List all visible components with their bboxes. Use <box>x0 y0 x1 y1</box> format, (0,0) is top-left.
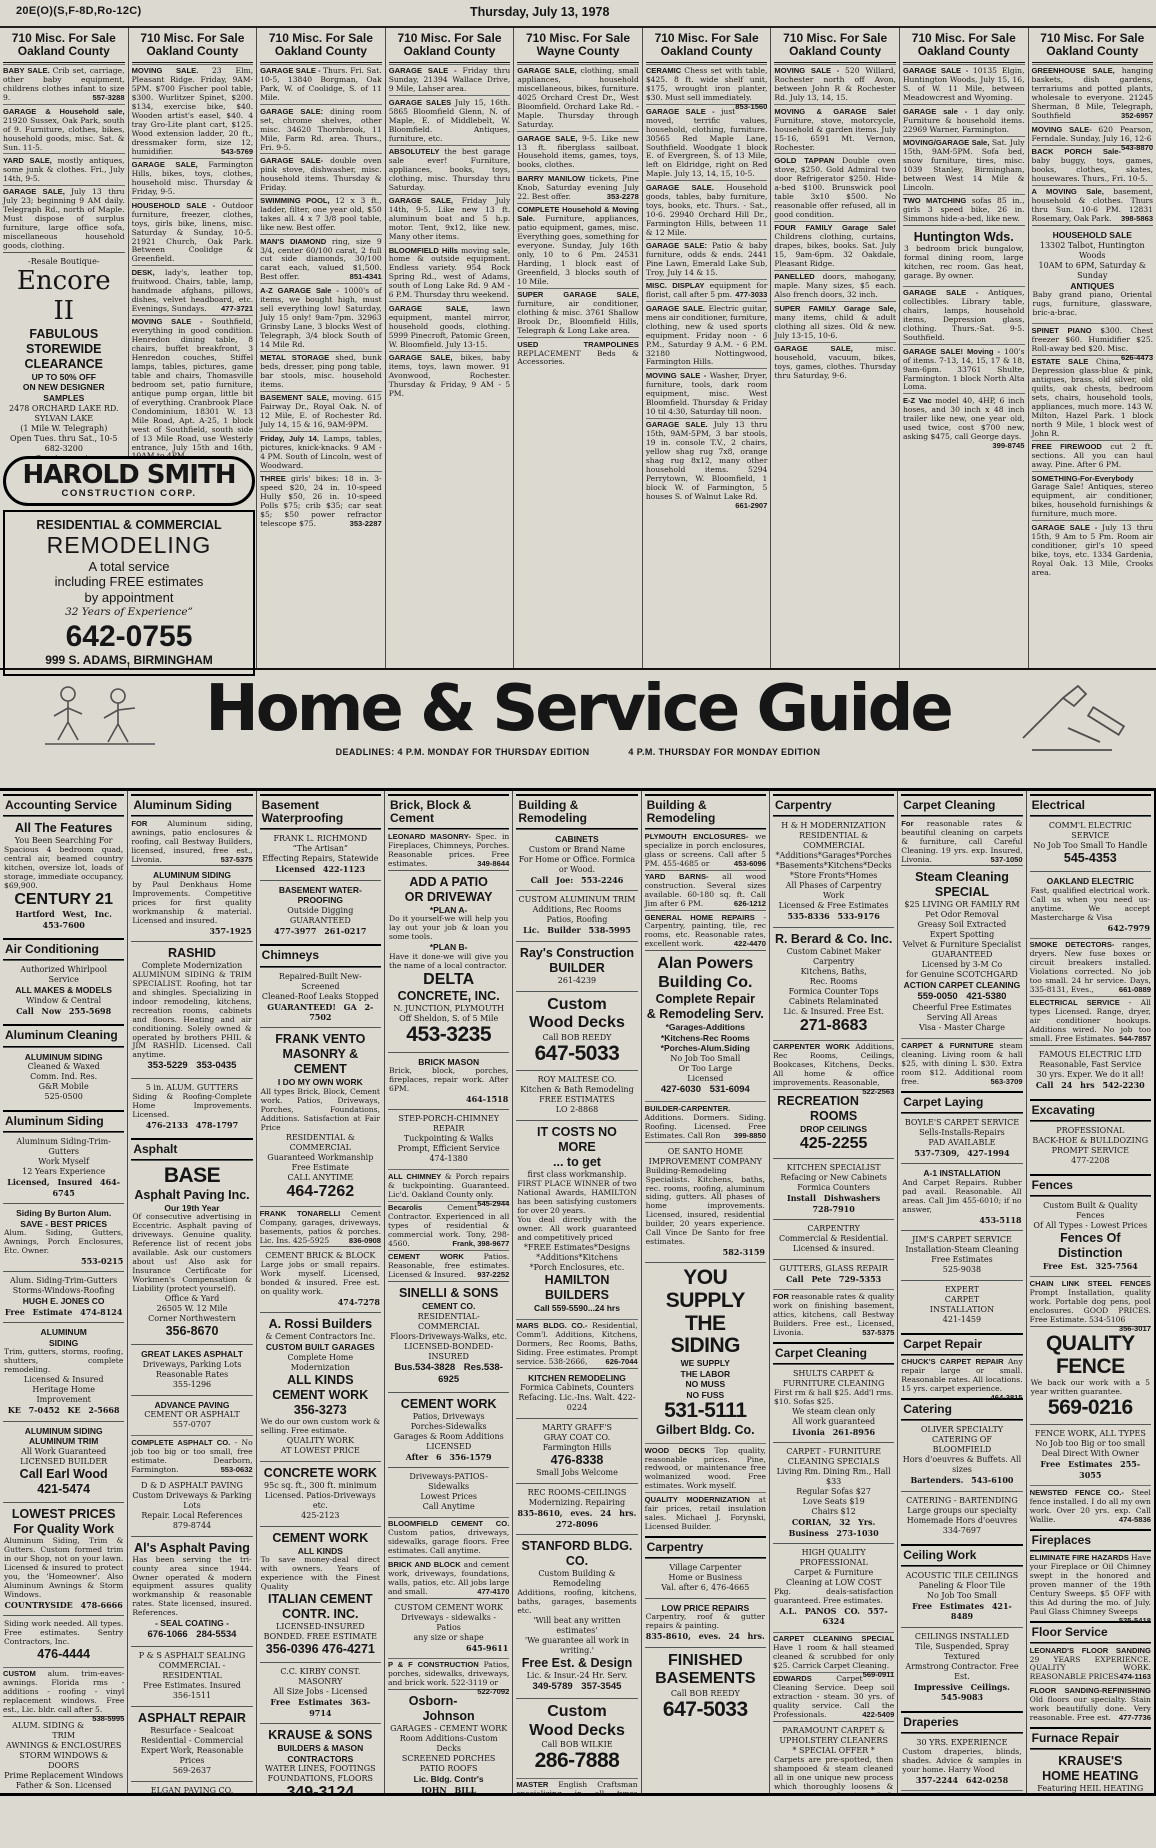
category-header: Carpet Repair <box>901 1333 1022 1355</box>
service-display-ad: CEILINGS INSTALLEDTile, Suspended, Spray… <box>901 1627 1022 1708</box>
ad-line: ALUMINUM SIDING <box>4 1426 123 1437</box>
ad-line: Alum. Siding-Trim-Gutters <box>4 1276 123 1286</box>
ad-line: Custom <box>517 1703 636 1721</box>
service-display-ad: Aluminum Siding-Trim-GuttersWork Myself1… <box>3 1132 124 1203</box>
category-header: Air Conditioning <box>3 938 124 960</box>
classified-ad: GARAGE SALE, lawn equipment, mantel mirr… <box>389 301 511 350</box>
ad-line: FRANK VENTO <box>261 1032 380 1047</box>
harold-smith-logo: HAROLD SMITH CONSTRUCTION CORP. <box>3 456 255 506</box>
column-header-line: Wayne County <box>517 45 639 58</box>
ad-lead: GARAGE SALE. <box>646 304 709 313</box>
ad-line: Heritage Home Improvement <box>4 1385 123 1405</box>
ad-lead: BRICK AND BLOCK <box>388 1560 464 1569</box>
ad-lead: GARAGE SALE, <box>389 304 492 313</box>
phone-number: 421-5474 <box>4 1482 123 1497</box>
classified-ad: Friday, July 14. Lamps, tables, pictures… <box>260 431 382 471</box>
service-ad: ELECTRICAL SERVICE - All types Licensed.… <box>1030 996 1151 1045</box>
phone-number: 642-0755 <box>7 620 251 653</box>
ad-line: CUSTOM ALUMINUM TRIM <box>517 895 636 905</box>
phone-number: 399-8745 <box>992 442 1024 451</box>
phone-number: 353-2278 <box>607 193 639 202</box>
ad-line: Expert Spotting <box>902 930 1021 940</box>
service-ad: FOR Aluminum siding, awnings, patio encl… <box>131 816 252 865</box>
ad-line: CALL ANYTIME <box>261 1173 380 1183</box>
ad-line: A total service <box>7 559 251 575</box>
service-ad: MASTER English Craftsman specializing in… <box>516 1778 637 1793</box>
ad-lead: SUPER GARAGE SALE, <box>517 290 639 299</box>
service-display-ad: Village CarpenterHome or BusinessVal. af… <box>645 1558 766 1598</box>
phone-number: 422-5409 <box>862 1711 894 1720</box>
service-ad: NEWSTED FENCE CO.- Steel fence installed… <box>1030 1485 1151 1525</box>
ad-line: P & S ASPHALT SEALING <box>132 1651 251 1661</box>
service-display-ad: CONCRETE WORK95c sq. ft., 300 ft. minimu… <box>260 1461 381 1526</box>
ad-line: Effecting Repairs, Statewide <box>261 854 380 864</box>
ad-line: Homemade Hors d'oeuvres <box>902 1516 1021 1526</box>
column-header-line: Oakland County <box>903 45 1025 58</box>
phone-number: 353-5229 353-0435 <box>132 1060 251 1072</box>
classified-display-ad: HOUSEHOLD SALE13302 Talbot, Huntington W… <box>1032 225 1154 323</box>
masthead: 20E(O)(S,F-8D,Ro-12C) Thursday, July 13,… <box>0 0 1156 26</box>
phone-number: 563-3709 <box>991 1078 1023 1087</box>
phone-number: 356-3273 <box>261 1403 380 1418</box>
service-ad: BLOOMFIELD CEMENT CO. Custom patios, dri… <box>388 1517 509 1557</box>
ad-lead: FOUR FAMILY Garage Sale! <box>774 223 896 232</box>
ad-line: Patios, Roofing <box>517 915 636 925</box>
ad-line: NO MUSS <box>646 1379 765 1390</box>
ad-line: & Remodeling Serv. <box>646 1007 765 1022</box>
ad-line: Free Est. & Design <box>517 1656 636 1671</box>
ad-lead: FOR <box>131 819 167 828</box>
ad-line: Father & Son. Licensed <box>4 1781 123 1791</box>
ad-lead: YARD BARNS- <box>645 872 723 881</box>
service-ad: YARD BARNS- all wood construction. Sever… <box>645 870 766 910</box>
phone-number: 647-5033 <box>646 1699 765 1722</box>
ad-line: ELGAN PAVING CO. <box>132 1786 251 1793</box>
ad-line: FENCE WORK, ALL TYPES <box>1031 1429 1150 1439</box>
ad-line: GUTTERS, GLASS REPAIR <box>774 1264 893 1274</box>
phone-number: Call 559-5590...24 hrs <box>517 1303 636 1314</box>
phone-number: 453-6096 <box>734 860 766 869</box>
service-column: Basement WaterproofingFRANK L. RICHMOND“… <box>256 791 384 1793</box>
ad-line: “The Artisan” <box>261 844 380 854</box>
ad-line: Gilbert Bldg. Co. <box>646 1423 765 1438</box>
classified-ad: GARAGE SALE, bikes, baby items, toys, la… <box>389 351 511 400</box>
classified-ad: GARAGE SALES July 15, 16th. 5865 Bloomfi… <box>389 95 511 144</box>
ad-line: Living Rm. Dining Rm., Hall $33 <box>774 1467 893 1487</box>
phone-number: 474-1380 <box>389 1154 508 1164</box>
ad-line: GREAT LAKES ASPHALT <box>132 1349 251 1360</box>
phone-number: 569-0216 <box>1031 1397 1150 1420</box>
ad-line: RESIDENTIAL-COMMERCIAL <box>389 1312 508 1332</box>
service-ad: GENERAL HOME REPAIRS - Carpentry, painti… <box>645 910 766 950</box>
ad-line: CEMENT WORK <box>261 1531 380 1546</box>
column-header-line: Oakland County <box>774 45 896 58</box>
service-ad: LEONARD MASONRY- Spec. in Fireplaces, Ch… <box>388 829 509 869</box>
ad-line: For Quality Work <box>4 1522 123 1537</box>
classified-ad: BLOOMFIELD Hills moving sale, home & out… <box>389 243 511 301</box>
service-ad: BUILDER-CARPENTER. Additions. Dormers. S… <box>645 1101 766 1141</box>
ad-line: ALUMINUM TRIM <box>4 1436 123 1447</box>
ad-lead: GARAGE SALE, <box>517 134 582 143</box>
service-display-ad: LOW PRICE REPAIRSCarpentry, roof & gutte… <box>645 1598 766 1647</box>
service-display-ad: FRANK L. RICHMOND“The Artisan”Effecting … <box>260 829 381 879</box>
ad-line: *Garages-Additions <box>646 1022 765 1033</box>
ad-line: Custom draperies, blinds, shades. Advice… <box>902 1748 1021 1775</box>
classified-ad: GARAGE SALE: dining room set, chrome she… <box>260 104 382 153</box>
phone-number: Licensed, Insured 464-6745 <box>4 1177 123 1198</box>
phone-number: 476-4444 <box>4 1647 123 1662</box>
ad-line: 3 bedroom brick bungalow, formal dining … <box>904 245 1024 281</box>
ad-line: For Home or Office. Formica or Wood. <box>517 855 636 875</box>
ad-lead: GARAGE SALES <box>389 98 455 107</box>
ad-line: R. Berard & Co. Inc. <box>774 932 893 947</box>
ad-line: N. JUNCTION, PLYMOUTH <box>389 1004 508 1014</box>
ad-line: BONDED. FREE ESTIMATE <box>261 1632 380 1642</box>
classified-ad: GARAGE SALE: Patio & baby furniture, odd… <box>646 239 768 279</box>
ad-line: Do it yourself-we will help you lay out … <box>389 915 508 942</box>
ad-line: GRAY COAT CO. <box>517 1433 636 1443</box>
column-header-line: Oakland County <box>260 45 382 58</box>
ad-line: Pet Odor Removal <box>902 910 1021 920</box>
ad-line: 2478 ORCHARD LAKE RD. <box>4 404 124 414</box>
service-ad: CARPENTER WORK Additions, Rec Rooms, Cei… <box>773 1040 894 1089</box>
service-display-ad: SHULTS CARPET &FURNITURE CLEANINGFirst r… <box>773 1364 894 1442</box>
column-header: 710 Misc. For SaleWayne County <box>517 28 639 63</box>
ad-line: Licensed & insured. <box>774 1244 893 1254</box>
ad-line: PARAMOUNT CARPET & <box>774 1726 893 1736</box>
column-header: 710 Misc. For SaleOakland County <box>3 28 125 63</box>
ad-line: SHULTS CARPET & <box>774 1369 893 1379</box>
ad-line: Huntington Wds. <box>904 230 1024 245</box>
service-display-ad: Alum. Siding-Trim-GuttersStorms-Windows-… <box>3 1271 124 1322</box>
ad-line: Custom Building & Remodeling <box>517 1569 636 1589</box>
phone-number: Call Pete 729-5353 <box>774 1274 893 1284</box>
phone-number: 543-8870 <box>1121 144 1153 153</box>
service-display-ad: ADVANCE PAVINGCEMENT OR ASPHALT557-0707 <box>131 1395 252 1436</box>
ad-line: Call Anytime <box>389 1502 508 1512</box>
phone-number: 286-7888 <box>517 1750 636 1773</box>
ad-line: Fences Of Distinction <box>1031 1231 1150 1261</box>
ad-line: A. Rossi Builders <box>261 1317 380 1332</box>
column-header-line: Oakland County <box>132 45 254 58</box>
service-display-ad: ALUMINUM SIDINGby Paul Denkhaus Home Imp… <box>131 865 252 940</box>
service-ad: CHAIN LINK STEEL FENCES Prompt Installat… <box>1030 1276 1151 1325</box>
ad-line: UP TO 50% OFF <box>4 372 124 383</box>
advertiser-name: HAROLD SMITH <box>8 462 250 488</box>
phone-number: 557-3288 <box>92 94 124 103</box>
ad-line: Free Estimates. Insured <box>132 1681 251 1691</box>
deadlines-note: DEADLINES: 4 P.M. MONDAY FOR THURSDAY ED… <box>0 747 1156 757</box>
ad-line: Large jobs or small repairs. Work myself… <box>261 1261 380 1297</box>
ad-lead: GARAGE SALE, <box>132 160 209 169</box>
ad-line: FREE ESTIMATES <box>517 1095 636 1105</box>
ad-line: Porches-Sidewalks <box>389 1422 508 1432</box>
ad-line: Custom Cabinet Maker <box>774 947 893 957</box>
classified-ad: ESTATE SALE China, Depression glass-blue… <box>1032 355 1154 440</box>
service-display-ad: KRAUSE'SHOME HEATINGFeaturing HEIL HEATI… <box>1030 1749 1151 1793</box>
service-ad: BRADLEY'S CUSTOM Draperies, made in our … <box>901 1790 1022 1793</box>
ad-lead: BABY SALE. <box>3 66 53 75</box>
classified-ad: USED TRAMPOLINES REPLACEMENT Beds & Acce… <box>517 337 639 368</box>
classified-ad: MOVING SALE. 23 Elm, Pleasant Ridge. Fri… <box>132 64 254 158</box>
ad-line: IT COSTS NO MORE <box>517 1125 636 1155</box>
service-display-ad: CEMENT WORKALL KINDSTo save money-deal d… <box>260 1526 381 1662</box>
category-header: Fireplaces <box>1030 1529 1151 1551</box>
phone-number: 464-1518 <box>389 1094 508 1104</box>
ad-line: 12 Years Experience <box>4 1167 123 1177</box>
service-display-ad: CustomWood DecksCall BOB REEDY647-5033 <box>516 991 637 1070</box>
ad-lead: SWIMMING POOL, <box>260 196 335 205</box>
classified-ad: GARAGE & Household sale, 21920 Sussex, O… <box>3 104 125 153</box>
phone-number: 661-2907 <box>735 502 767 511</box>
column-header-line: 710 Misc. For Sale <box>517 32 639 45</box>
phone-number: 334-7697 <box>902 1526 1021 1536</box>
phone-number: 474-7278 <box>261 1297 380 1307</box>
ad-line: Carpet & Furniture <box>774 1568 893 1578</box>
classified-column: 710 Misc. For SaleOakland CountyGARAGE S… <box>256 28 385 668</box>
category-header: Electrical <box>1030 794 1151 816</box>
classified-column: 710 Misc. For SaleOakland CountyGARAGE S… <box>385 28 514 668</box>
phone-number: 569-0911 <box>863 1671 895 1680</box>
ad-lead: MASTER <box>516 1780 558 1789</box>
ad-line: by Paul Denkhaus Home Improvements. Comp… <box>132 881 251 926</box>
ad-line: Licensed & Insured <box>4 1375 123 1385</box>
ad-line: Wood Decks <box>517 1014 636 1032</box>
category-header: Draperies <box>901 1711 1022 1733</box>
ad-line: Cheerful Free Estimates <box>902 1003 1021 1013</box>
service-display-ad: Authorized Whirlpool ServiceALL MAKES & … <box>3 960 124 1021</box>
service-display-ad: BASEMENT WATER-PROOFINGOutside DiggingGU… <box>260 880 381 942</box>
column-header-line: 710 Misc. For Sale <box>132 32 254 45</box>
ad-lead: MARS BLDG. CO.- <box>516 1321 592 1330</box>
ad-line: REMODELING <box>7 533 251 558</box>
classified-ad: SWIMMING POOL, 12 x 3 ft., ladder, filte… <box>260 194 382 234</box>
ad-line: Carpets are pre-spotted, then shampooed … <box>774 1756 893 1793</box>
service-display-ad: CATERING - BARTENDINGLarge groups our sp… <box>901 1491 1022 1541</box>
service-ad: For reasonable rates & beautiful cleanin… <box>901 816 1022 865</box>
ad-lead: MISC. DISPLAY <box>646 281 710 290</box>
ad-line: Authorized Whirlpool Service <box>4 965 123 985</box>
ad-line: ASPHALT REPAIR <box>132 1711 251 1726</box>
ad-line: JIM'S CARPET SERVICE <box>902 1235 1021 1245</box>
ad-line: D & D ASPHALT PAVING <box>132 1481 251 1491</box>
ad-lead: LEONARD MASONRY- <box>388 832 476 841</box>
ad-line: CEMENT OR ASPHALT <box>132 1410 251 1420</box>
ad-line: LOWEST PRICES <box>4 1507 123 1522</box>
ad-line: Aluminum Siding-Trim-Gutters <box>4 1137 123 1157</box>
category-header: Carpet Cleaning <box>901 794 1022 816</box>
classified-ad: MOVING SALE - Washer, Dryer, furniture, … <box>646 368 768 417</box>
phone-number: 537-7309, 427-1994 <box>902 1148 1021 1158</box>
ad-line: CARPENTRY <box>774 1224 893 1234</box>
phone-number: 476-8338 <box>517 1453 636 1468</box>
phone-number: 626-7044 <box>606 1358 638 1367</box>
classified-ad: FOUR FAMILY Garage Sale! Childrens cloth… <box>774 221 896 270</box>
column-header-line: 710 Misc. For Sale <box>903 32 1025 45</box>
service-ad: CUSTOM alum. trim-eaves-awnings. Florida… <box>3 1667 124 1716</box>
ad-line: 95c sq. ft., 300 ft. minimum <box>261 1481 380 1491</box>
phone-number: 559-0050 421-5380 <box>902 991 1021 1003</box>
classified-ad: TWO MATCHING sofas 85 in., girls 3 speed… <box>903 194 1025 225</box>
ad-line: CEILINGS INSTALLED <box>902 1632 1021 1642</box>
ad-line: Call Earl Wood <box>4 1467 123 1482</box>
phone-number: 353-2287 <box>350 520 382 529</box>
ad-line: Driveways, Parking Lots <box>132 1360 251 1370</box>
column-header-line: Oakland County <box>389 45 511 58</box>
ad-line: Reasonable, Fast Service <box>1031 1060 1150 1070</box>
classified-ad: GARAGE SALE - Friday thru Sunday, 21394 … <box>389 64 511 95</box>
ad-line: REC ROOMS-CEILINGS <box>517 1488 636 1498</box>
classified-ad: MOVING & GARAGE Sale! Furniture, stove, … <box>774 104 896 153</box>
ad-lead: CARPENTER WORK <box>773 1042 855 1051</box>
ad-lead: FLOOR SANDING-REFINISHING <box>1030 1686 1151 1695</box>
phone-number: 543-5769 <box>221 148 253 157</box>
service-display-ad: BOYLE'S CARPET SERVICESells-Installs-Rep… <box>901 1113 1022 1163</box>
ad-line: FAMOUS ELECTRIC LTD <box>1031 1050 1150 1060</box>
ad-line: HIGH QUALITY PROFESSIONAL <box>774 1548 893 1568</box>
ad-lead: COMPLETE ASPHALT CO. <box>131 1438 234 1447</box>
ad-lead: BLOOMFIELD Hills <box>389 246 461 255</box>
service-display-ad: OAKLAND ELECTRICFast, qualified electric… <box>1030 871 1151 937</box>
service-ad: PLYMOUTH ENCLOSURES- we specialize in po… <box>645 829 766 869</box>
ad-lead: GARAGE SALE - <box>903 288 988 297</box>
column-header: 710 Misc. For SaleOakland County <box>260 28 382 63</box>
ad-line: Alan Powers <box>646 955 765 973</box>
ad-line: Large groups our specialty <box>902 1506 1021 1516</box>
service-display-ad: CUSTOM ALUMINUM TRIMAdditions, Rec Rooms… <box>516 890 637 940</box>
category-header: Aluminum Siding <box>3 1110 124 1132</box>
ad-lead: GARAGE SALE, <box>3 187 71 196</box>
service-display-ad: YOUSUPPLYTHESIDINGWE SUPPLYTHE LABORNO M… <box>645 1262 766 1443</box>
service-display-ad: PROFESSIONALBACK-HOE & BULLDOZINGPROMPT … <box>1030 1121 1151 1171</box>
ad-line: *Additions*Garages*Porches <box>774 851 893 861</box>
classified-ad: GARAGE SALE. Electric guitar, mens air c… <box>646 301 768 368</box>
ad-line: Lic. & Insur.-24 Hr. Serv. <box>517 1671 636 1681</box>
phone-number: 355-1296 <box>132 1380 251 1390</box>
classifieds-section: 710 Misc. For SaleOakland CountyBABY SAL… <box>0 26 1156 668</box>
ad-line: Room Additions-Custom Decks <box>389 1734 508 1754</box>
ad-line: Repair. Local References <box>132 1511 251 1521</box>
banner-illustration-left <box>40 678 160 748</box>
ad-line: Carpentry, roof & gutter repairs & paint… <box>646 1613 765 1631</box>
ad-line: Chairs $12 <box>774 1507 893 1517</box>
phone-number: Free Est. 841-4913, 453-0924 <box>4 1791 123 1793</box>
ad-line: RECREATION ROOMS <box>774 1094 893 1124</box>
ad-lead: For <box>901 819 927 828</box>
service-ad: P & F CONSTRUCTION Patios, porches, side… <box>388 1658 509 1689</box>
service-column: Aluminum SidingFOR Aluminum siding, awni… <box>127 791 255 1793</box>
service-column: Building & RemodelingCABINETSCustom or B… <box>512 791 640 1793</box>
ad-line: COMM'L ELECTRIC SERVICE <box>1031 821 1150 841</box>
ad-line: *FREE Estimates*Designs <box>517 1243 636 1253</box>
service-display-ad: MARTY GRAFF'SGRAY COAT CO.Farmington Hil… <box>516 1418 637 1483</box>
ad-line: WE SUPPLY <box>646 1358 765 1369</box>
service-ad: CARPET CLEANING SPECIAL Have 1 room & ha… <box>773 1632 894 1672</box>
ad-line: EXPERT <box>902 1285 1021 1295</box>
ad-line: OLIVER SPECIALTY <box>902 1425 1021 1435</box>
ad-lead: GARAGE SALE: <box>646 241 712 250</box>
ad-line: Licensed. Patios-Driveways etc. <box>261 1491 380 1511</box>
ad-lead: WOOD DECKS <box>645 1446 715 1455</box>
service-ad: ALL CHIMNEY & Porch repairs & tuckpointi… <box>388 1169 509 1200</box>
service-display-ad: 5 in. ALUM. GUTTERSSiding & Roofing-Comp… <box>131 1078 252 1135</box>
ad-line: Tuckpointing & Walks <box>389 1134 508 1144</box>
phone-number: 545-2944 <box>477 1200 509 1209</box>
phone-number: 853-1560 <box>735 103 767 112</box>
ad-line: DROP CEILINGS <box>774 1124 893 1135</box>
category-header: Fences <box>1030 1174 1151 1196</box>
ad-line: CEMENT WORK <box>389 1397 508 1412</box>
ad-lead: MOVING SALE. <box>132 66 212 75</box>
ad-line: Cleaned & Waxed <box>4 1062 123 1072</box>
ad-line: Alum. Siding, Gutters, Awnings, Porch En… <box>4 1229 123 1256</box>
phone-number: 349-8644 <box>477 860 509 869</box>
column-header-line: Oakland County <box>646 45 768 58</box>
ad-line: 10AM to 6PM, Saturday & Sunday <box>1033 261 1153 281</box>
ad-lead: CHAIN LINK STEEL FENCES <box>1030 1279 1151 1288</box>
ad-line: We back our work with a 5 year written g… <box>1031 1379 1150 1397</box>
phone-number: 425-2123 <box>261 1511 380 1521</box>
ad-line: Brick, block, porches, fireplaces, repai… <box>389 1067 508 1094</box>
ad-line: BUILDER <box>517 961 636 976</box>
ad-line: GARAGES - CEMENT WORK <box>389 1724 508 1734</box>
ad-line: *Porch Enclosures, etc. <box>517 1263 636 1273</box>
harold-smith-ad-body: RESIDENTIAL & COMMERCIAL REMODELING A to… <box>3 510 255 676</box>
ad-lead: GARAGE SALE - <box>1032 523 1103 532</box>
ad-line: CONCRETE WORK <box>261 1466 380 1481</box>
ad-line: ALUMINUM SIDING & TRIM SPECIALIST. Roofi… <box>132 971 251 1061</box>
ad-line: MASONRY <box>261 1677 380 1687</box>
ad-line: BACK-HOE & BULLDOZING <box>1031 1136 1150 1146</box>
ad-line: No Job Too Small <box>902 1591 1021 1601</box>
phone-number: 474-5836 <box>1119 1516 1151 1525</box>
ad-line: Free Estimates <box>902 1255 1021 1265</box>
ad-line: All work guaranteed <box>774 1417 893 1427</box>
ad-line: 26505 W. 12 Mile <box>132 1304 251 1314</box>
phone-number: 522-2563 <box>862 1088 894 1097</box>
edition-code: 20E(O)(S,F-8D,Ro-12C) <box>16 5 141 17</box>
ad-lead: BASEMENT SALE, <box>260 393 332 402</box>
service-display-ad: PARAMOUNT CARPET &UPHOLSTERY CLEANERS* S… <box>773 1721 894 1793</box>
ad-lead: GARAGE SALE, <box>774 344 875 353</box>
service-display-ad: Steam CleaningSPECIAL$25 LIVING OR FAMIL… <box>901 865 1022 1038</box>
ad-line: Ray's Construction <box>517 946 636 961</box>
classified-ad: SPINET PIANO $300. Chest freezer $60. Hu… <box>1032 323 1154 354</box>
ad-line: Village Carpenter <box>646 1563 765 1573</box>
ad-line: Baby grand piano, Oriental rugs, furnitu… <box>1033 291 1153 318</box>
ad-line: All Phases of Carpentry Work <box>774 881 893 901</box>
service-guide-section: Accounting ServiceAll The FeaturesYou Be… <box>0 788 1156 1796</box>
category-header: Carpentry <box>773 794 894 816</box>
ad-line: $25 LIVING OR FAMILY RM <box>902 900 1021 910</box>
classified-column: 710 Misc. For SaleWayne CountyGARAGE SAL… <box>513 28 642 668</box>
classified-ad: E-Z Vac model 40, 4HP, 6 inch hoses, and… <box>903 393 1025 442</box>
service-ad: CARPET & FURNITURE steam cleaning. Livin… <box>901 1038 1022 1087</box>
service-display-ad: ADD A PATIOOR DRIVEWAY*PLAN A-Do it your… <box>388 870 509 1052</box>
ad-lead: MOVING SALE - <box>774 66 845 75</box>
phone-number: 553-0632 <box>221 1466 253 1475</box>
ad-lead: FREE FIREWOOD <box>1032 442 1111 451</box>
service-display-ad: A-1 INSTALLATIONAnd Carpet Repairs. Rubb… <box>901 1163 1022 1229</box>
service-display-ad: CustomWood DecksCall BOB WILKIE286-7888 <box>516 1698 637 1777</box>
ad-line: OE SANTO HOME <box>646 1147 765 1157</box>
ad-line: Love Seats $19 <box>774 1497 893 1507</box>
category-header: Basement Waterproofing <box>260 794 381 829</box>
ad-line: KITCHEN REMODELING <box>517 1373 636 1384</box>
ad-lead: A MOVING Sale, <box>1032 187 1114 196</box>
ad-line: Driveways-PATIOS-Sidewalks <box>389 1472 508 1492</box>
ad-lead: SUPER FAMILY Garage Sale, <box>774 304 896 313</box>
